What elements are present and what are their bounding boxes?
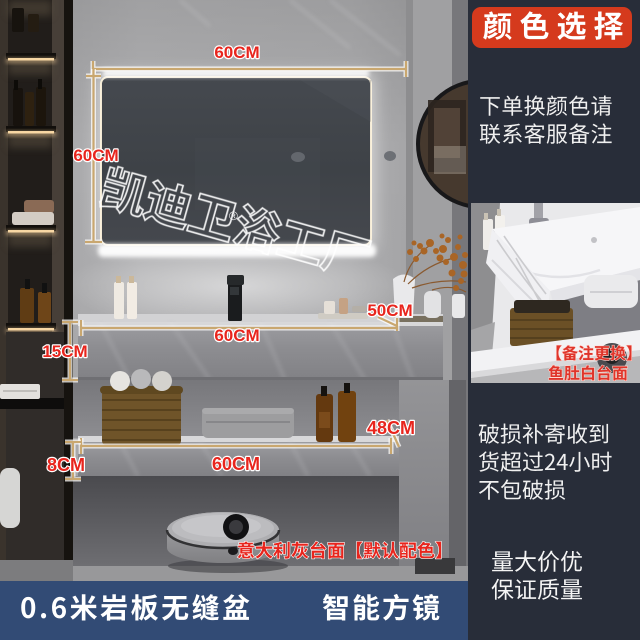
svg-text:60CM: 60CM	[73, 146, 118, 165]
svg-text:8CM: 8CM	[47, 455, 85, 475]
svg-text:15CM: 15CM	[42, 342, 87, 361]
svg-text:®: ®	[229, 209, 238, 223]
svg-text:60CM: 60CM	[214, 43, 259, 62]
svg-text:50CM: 50CM	[367, 301, 412, 320]
svg-text:60CM: 60CM	[214, 326, 259, 345]
svg-text:60CM: 60CM	[212, 454, 260, 474]
svg-text:48CM: 48CM	[367, 418, 415, 438]
